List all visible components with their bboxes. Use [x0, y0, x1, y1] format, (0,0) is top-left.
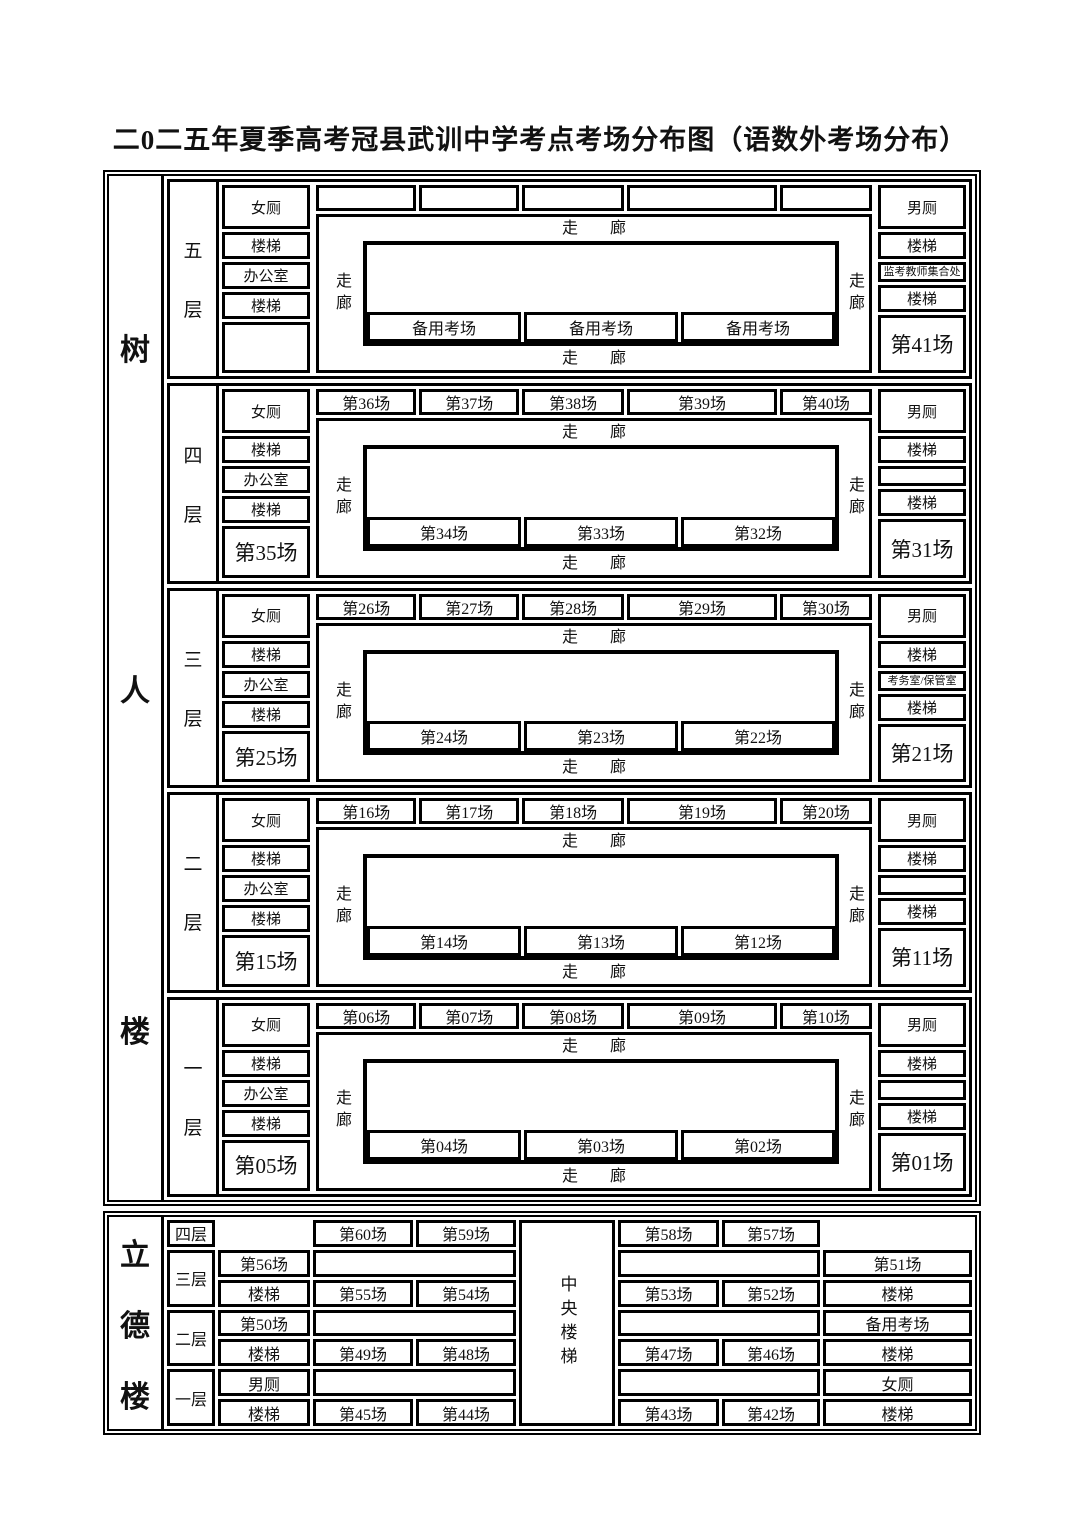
room-womens-toilet: 女厕 [222, 798, 310, 842]
exam-room: 第15场 [222, 935, 310, 986]
corridor-label-vertical: 走廊 [839, 240, 869, 347]
exam-room: 第31场 [878, 519, 966, 577]
exam-room: 第34场 [367, 517, 521, 547]
floor-label: 二 层 [170, 795, 219, 989]
floor-label-char: 层 [183, 908, 202, 935]
room-stairs: 楼梯 [878, 641, 966, 668]
left-rooms-column: 女厕 楼梯 办公室 楼梯 第05场 [219, 1000, 313, 1194]
room-stairs: 楼梯 [878, 1103, 966, 1130]
exam-room: 第12场 [681, 926, 835, 956]
corridor-label-text: 走廊 [329, 272, 353, 316]
empty-room-cell [878, 875, 966, 895]
room-womens-toilet: 女厕 [222, 1003, 310, 1047]
exam-room: 第05场 [222, 1140, 310, 1191]
floor-label: 三 层 [170, 591, 219, 785]
corridor-area: 走 廊 走廊 第14场 第13场 第12场 走廊 [316, 827, 872, 986]
corridor-label: 走 廊 [319, 552, 869, 575]
room-stairs: 楼梯 [878, 489, 966, 516]
room-exam-affairs-storage: 考务室/保管室 [878, 671, 966, 691]
classroom-block: 第34场 第33场 第32场 [363, 445, 839, 550]
exam-room: 第50场 [218, 1310, 310, 1337]
backup-exam-room: 备用考场 [524, 312, 678, 342]
exam-room: 第59场 [416, 1220, 516, 1247]
room-office: 办公室 [222, 875, 310, 902]
exam-room: 第26场 [316, 594, 416, 620]
room-stairs: 楼梯 [222, 496, 310, 523]
floor-middle: 走 廊 走廊 备用考场 备用考场 备用考场 走廊 [313, 182, 875, 376]
classroom-space [367, 858, 835, 925]
exam-room: 第25场 [222, 731, 310, 782]
room-stairs: 楼梯 [222, 905, 310, 932]
room-office: 办公室 [222, 466, 310, 493]
classroom-block: 第14场 第13场 第12场 [363, 854, 839, 959]
room-stairs: 楼梯 [823, 1280, 972, 1307]
left-rooms-column: 女厕 楼梯 办公室 楼梯 [219, 182, 313, 376]
exam-room: 第18场 [522, 798, 624, 824]
corridor-label-text: 走廊 [842, 1089, 866, 1133]
classroom-space [367, 449, 835, 516]
exam-room: 第28场 [522, 594, 624, 620]
exam-room: 第45场 [313, 1399, 413, 1426]
room-womens-toilet: 女厕 [222, 594, 310, 638]
room-stairs: 楼梯 [823, 1399, 972, 1426]
room-stairs: 楼梯 [218, 1280, 310, 1307]
room-stairs: 楼梯 [222, 232, 310, 259]
floor-label: 四 层 [170, 386, 219, 580]
corridor-label: 走 廊 [319, 830, 869, 853]
exam-room: 第07场 [419, 1003, 519, 1029]
floors-stack: 五 层 女厕 楼梯 办公室 楼梯 走 廊 [164, 176, 975, 1200]
corridor-label-vertical: 走廊 [839, 649, 869, 756]
corridor-label: 走 廊 [319, 961, 869, 984]
room-office: 办公室 [222, 262, 310, 289]
floor-label-char: 层 [183, 500, 202, 527]
exam-room: 第40场 [780, 389, 872, 415]
corridor-label-vertical: 走廊 [319, 853, 363, 960]
corridor-label-text: 走廊 [842, 476, 866, 520]
left-rooms-column: 女厕 楼梯 办公室 楼梯 第15场 [219, 795, 313, 989]
exam-room: 第57场 [722, 1220, 820, 1247]
building-name-vertical: 树 人 楼 [109, 176, 164, 1200]
corridor-label-vertical: 走廊 [839, 444, 869, 551]
backup-exam-room: 备用考场 [367, 312, 521, 342]
corridor-label-vertical: 走廊 [839, 1058, 869, 1165]
room-womens-toilet: 女厕 [222, 185, 310, 229]
right-rooms-column: 男厕 楼梯 楼梯 第11场 [875, 795, 969, 989]
empty-room-cell [618, 1250, 820, 1277]
building-notch [218, 1220, 310, 1247]
room-stairs: 楼梯 [218, 1399, 310, 1426]
exam-room: 第37场 [419, 389, 519, 415]
corridor-area: 走 廊 走廊 第34场 第33场 第32场 走廊 [316, 418, 872, 577]
floor-label: 二层 [167, 1310, 215, 1367]
exam-room: 第56场 [218, 1250, 310, 1277]
exam-room: 第47场 [618, 1339, 719, 1366]
room-stairs: 楼梯 [222, 436, 310, 463]
corridor-middle: 走廊 第24场 第23场 第22场 走廊 [319, 649, 869, 756]
corridor-label-vertical: 走廊 [839, 853, 869, 960]
floor-label-char: 层 [183, 704, 202, 731]
classroom-space [367, 654, 835, 721]
corridor-area: 走 廊 走廊 第24场 第23场 第22场 走廊 [316, 623, 872, 782]
exam-room: 第32场 [681, 517, 835, 547]
corridor-label-vertical: 走廊 [319, 649, 363, 756]
right-rooms-column: 男厕 楼梯 楼梯 第31场 [875, 386, 969, 580]
room-womens-toilet: 女厕 [823, 1369, 972, 1396]
floor-middle: 第06场 第07场 第08场 第09场 第10场 走 廊 走廊 第04场 [313, 1000, 875, 1194]
exam-room: 第02场 [681, 1130, 835, 1160]
empty-room-cell [313, 1310, 516, 1337]
room-stairs: 楼梯 [823, 1339, 972, 1366]
building-name-vertical: 立 德 楼 [109, 1217, 164, 1429]
floor-label: 三层 [167, 1250, 215, 1307]
room-stairs: 楼梯 [878, 436, 966, 463]
floor-4: 四 层 女厕 楼梯 办公室 楼梯 第35场 第36场 第37场 第38场 第39… [167, 383, 972, 583]
room-stairs: 楼梯 [878, 694, 966, 721]
room-stairs: 楼梯 [218, 1339, 310, 1366]
empty-room-cell [618, 1310, 820, 1337]
corridor-label-vertical: 走廊 [319, 444, 363, 551]
exam-room: 第04场 [367, 1130, 521, 1160]
corridor-label-text: 走廊 [842, 272, 866, 316]
empty-room-cell [878, 466, 966, 486]
room-stairs: 楼梯 [878, 1050, 966, 1077]
exam-room: 第17场 [419, 798, 519, 824]
room-stairs: 楼梯 [222, 292, 310, 319]
corridor-middle: 走廊 备用考场 备用考场 备用考场 走廊 [319, 240, 869, 347]
corridor-label-vertical: 走廊 [319, 240, 363, 347]
exam-room: 第06场 [316, 1003, 416, 1029]
room-invigilator-assembly: 监考教师集合处 [878, 262, 966, 282]
corridor-label: 走 廊 [319, 421, 869, 444]
empty-room-cell [419, 185, 519, 211]
floor-label-char: 二 [183, 849, 202, 876]
room-stairs: 楼梯 [222, 641, 310, 668]
exam-room: 第03场 [524, 1130, 678, 1160]
room-stairs: 楼梯 [878, 898, 966, 925]
exam-room: 第14场 [367, 926, 521, 956]
building-notch [823, 1220, 972, 1247]
empty-room-cell [878, 1080, 966, 1100]
exam-room: 第49场 [313, 1339, 413, 1366]
corridor-area: 走 廊 走廊 备用考场 备用考场 备用考场 走廊 [316, 214, 872, 373]
exam-room: 第30场 [780, 594, 872, 620]
exam-room: 第53场 [618, 1280, 719, 1307]
room-mens-toilet: 男厕 [878, 1003, 966, 1047]
corridor-label: 走 廊 [319, 756, 869, 779]
building-name-char: 楼 [120, 1007, 150, 1051]
room-mens-toilet: 男厕 [878, 389, 966, 433]
room-stairs: 楼梯 [878, 285, 966, 312]
exam-room: 第41场 [878, 315, 966, 373]
classroom-block: 备用考场 备用考场 备用考场 [363, 241, 839, 346]
floor-middle: 第26场 第27场 第28场 第29场 第30场 走 廊 走廊 第24场 [313, 591, 875, 785]
empty-room-cell [313, 1250, 516, 1277]
inner-exam-row: 第24场 第23场 第22场 [367, 721, 835, 751]
exam-room: 第48场 [416, 1339, 516, 1366]
right-rooms-column: 男厕 楼梯 楼梯 第01场 [875, 1000, 969, 1194]
top-exam-row: 第06场 第07场 第08场 第09场 第10场 [316, 1003, 872, 1029]
floor-middle: 第16场 第17场 第18场 第19场 第20场 走 廊 走廊 第14场 [313, 795, 875, 989]
exam-room: 第20场 [780, 798, 872, 824]
exam-room: 第42场 [722, 1399, 820, 1426]
exam-room: 第33场 [524, 517, 678, 547]
floor-3: 三 层 女厕 楼梯 办公室 楼梯 第25场 第26场 第27场 第28场 第29… [167, 588, 972, 788]
inner-exam-row: 第14场 第13场 第12场 [367, 926, 835, 956]
exam-room: 第19场 [627, 798, 776, 824]
exam-room: 第16场 [316, 798, 416, 824]
floor-label-char: 一 [183, 1054, 202, 1081]
classroom-block: 第24场 第23场 第22场 [363, 650, 839, 755]
building-name-char: 楼 [120, 1372, 150, 1416]
central-stairs: 中央楼梯 [519, 1220, 615, 1426]
exam-room: 第08场 [522, 1003, 624, 1029]
corridor-label: 走 廊 [319, 1165, 869, 1188]
top-exam-row: 第16场 第17场 第18场 第19场 第20场 [316, 798, 872, 824]
central-stairs-label: 中央楼梯 [555, 1275, 580, 1371]
room-stairs: 楼梯 [878, 845, 966, 872]
room-mens-toilet: 男厕 [878, 798, 966, 842]
floor-2: 二 层 女厕 楼梯 办公室 楼梯 第15场 第16场 第17场 第18场 第19… [167, 792, 972, 992]
room-mens-toilet: 男厕 [218, 1369, 310, 1396]
inner-exam-row: 第04场 第03场 第02场 [367, 1130, 835, 1160]
corridor-label-text: 走廊 [842, 681, 866, 725]
exam-room: 第11场 [878, 928, 966, 986]
floor-label: 一层 [167, 1369, 215, 1426]
corridor-label: 走 廊 [319, 1035, 869, 1058]
empty-room-cell [780, 185, 872, 211]
exam-room: 第29场 [627, 594, 776, 620]
floor-5: 五 层 女厕 楼梯 办公室 楼梯 走 廊 [167, 179, 972, 379]
floor-label-char: 三 [183, 645, 202, 672]
room-office: 办公室 [222, 671, 310, 698]
room-stairs: 楼梯 [222, 845, 310, 872]
exam-room: 第44场 [416, 1399, 516, 1426]
exam-room: 第38场 [522, 389, 624, 415]
building-lide: 立 德 楼 四层 三层 二层 一层 第56场 楼梯 第50场 楼梯 男厕 楼梯 … [103, 1211, 981, 1435]
top-exam-row: 第36场 第37场 第38场 第39场 第40场 [316, 389, 872, 415]
exam-room: 第55场 [313, 1280, 413, 1307]
exam-room: 第36场 [316, 389, 416, 415]
page-title: 二0二五年夏季高考冠县武训中学考点考场分布图（语数外考场分布） [0, 118, 1080, 157]
left-rooms-column: 女厕 楼梯 办公室 楼梯 第35场 [219, 386, 313, 580]
exam-room: 第09场 [627, 1003, 776, 1029]
building-name-char: 德 [120, 1301, 150, 1345]
building-name-char: 立 [120, 1230, 150, 1274]
corridor-middle: 走廊 第14场 第13场 第12场 走廊 [319, 853, 869, 960]
exam-room: 第22场 [681, 721, 835, 751]
corridor-label-vertical: 走廊 [319, 1058, 363, 1165]
corridor-label: 走 廊 [319, 626, 869, 649]
exam-room: 第58场 [618, 1220, 719, 1247]
building-shuren: 树 人 楼 五 层 女厕 楼梯 办公室 楼梯 [103, 170, 981, 1206]
corridor-middle: 走廊 第04场 第03场 第02场 走廊 [319, 1058, 869, 1165]
exam-room: 第24场 [367, 721, 521, 751]
building-name-char: 树 [120, 325, 150, 369]
backup-exam-room: 备用考场 [681, 312, 835, 342]
exam-room: 第60场 [313, 1220, 413, 1247]
exam-room: 第13场 [524, 926, 678, 956]
exam-room: 第35场 [222, 526, 310, 577]
classroom-block: 第04场 第03场 第02场 [363, 1059, 839, 1164]
corridor-label-text: 走廊 [842, 885, 866, 929]
backup-exam-room: 备用考场 [823, 1310, 972, 1337]
empty-room-cell [618, 1369, 820, 1396]
exam-room: 第54场 [416, 1280, 516, 1307]
floor-middle: 第36场 第37场 第38场 第39场 第40场 走 廊 走廊 第34场 [313, 386, 875, 580]
exam-room: 第21场 [878, 724, 966, 782]
corridor-label-text: 走廊 [329, 476, 353, 520]
floor-label: 五 层 [170, 182, 219, 376]
room-mens-toilet: 男厕 [878, 594, 966, 638]
corridor-area: 走 廊 走廊 第04场 第03场 第02场 走廊 [316, 1032, 872, 1191]
right-rooms-column: 男厕 楼梯 监考教师集合处 楼梯 第41场 [875, 182, 969, 376]
exam-room: 第10场 [780, 1003, 872, 1029]
floor-label: 四层 [167, 1220, 215, 1247]
floor-label: 一 层 [170, 1000, 219, 1194]
exam-room: 第52场 [722, 1280, 820, 1307]
corridor-label: 走 廊 [319, 347, 869, 370]
floor-label-char: 五 [183, 236, 202, 263]
empty-room-cell [313, 1369, 516, 1396]
floor-label-char: 层 [183, 295, 202, 322]
top-exam-row [316, 185, 872, 211]
building-name-char: 人 [120, 666, 150, 710]
empty-room-cell [222, 322, 310, 373]
right-rooms-column: 男厕 楼梯 考务室/保管室 楼梯 第21场 [875, 591, 969, 785]
room-stairs: 楼梯 [222, 1050, 310, 1077]
empty-room-cell [522, 185, 624, 211]
classroom-space [367, 1063, 835, 1130]
corridor-label-text: 走廊 [329, 1089, 353, 1133]
top-exam-row: 第26场 第27场 第28场 第29场 第30场 [316, 594, 872, 620]
room-womens-toilet: 女厕 [222, 389, 310, 433]
corridor-label-text: 走廊 [329, 885, 353, 929]
corridor-middle: 走廊 第34场 第33场 第32场 走廊 [319, 444, 869, 551]
exam-room: 第23场 [524, 721, 678, 751]
floor-label-char: 层 [183, 1113, 202, 1140]
room-mens-toilet: 男厕 [878, 185, 966, 229]
corridor-label: 走 廊 [319, 217, 869, 240]
corridor-label-text: 走廊 [329, 681, 353, 725]
inner-exam-row: 备用考场 备用考场 备用考场 [367, 312, 835, 342]
room-office: 办公室 [222, 1080, 310, 1107]
exam-room: 第39场 [627, 389, 776, 415]
empty-room-cell [627, 185, 776, 211]
exam-room: 第46场 [722, 1339, 820, 1366]
left-rooms-column: 女厕 楼梯 办公室 楼梯 第25场 [219, 591, 313, 785]
empty-room-cell [316, 185, 416, 211]
exam-room: 第51场 [823, 1250, 972, 1277]
exam-room: 第43场 [618, 1399, 719, 1426]
room-stairs: 楼梯 [878, 232, 966, 259]
exam-room: 第27场 [419, 594, 519, 620]
room-stairs: 楼梯 [222, 1110, 310, 1137]
lide-floor-grid: 四层 三层 二层 一层 第56场 楼梯 第50场 楼梯 男厕 楼梯 第60场 第… [164, 1217, 975, 1429]
floor-label-char: 四 [183, 441, 202, 468]
exam-room: 第01场 [878, 1133, 966, 1191]
inner-exam-row: 第34场 第33场 第32场 [367, 517, 835, 547]
room-stairs: 楼梯 [222, 701, 310, 728]
floor-1: 一 层 女厕 楼梯 办公室 楼梯 第05场 第06场 第07场 第08场 第09… [167, 997, 972, 1197]
classroom-space [367, 245, 835, 312]
